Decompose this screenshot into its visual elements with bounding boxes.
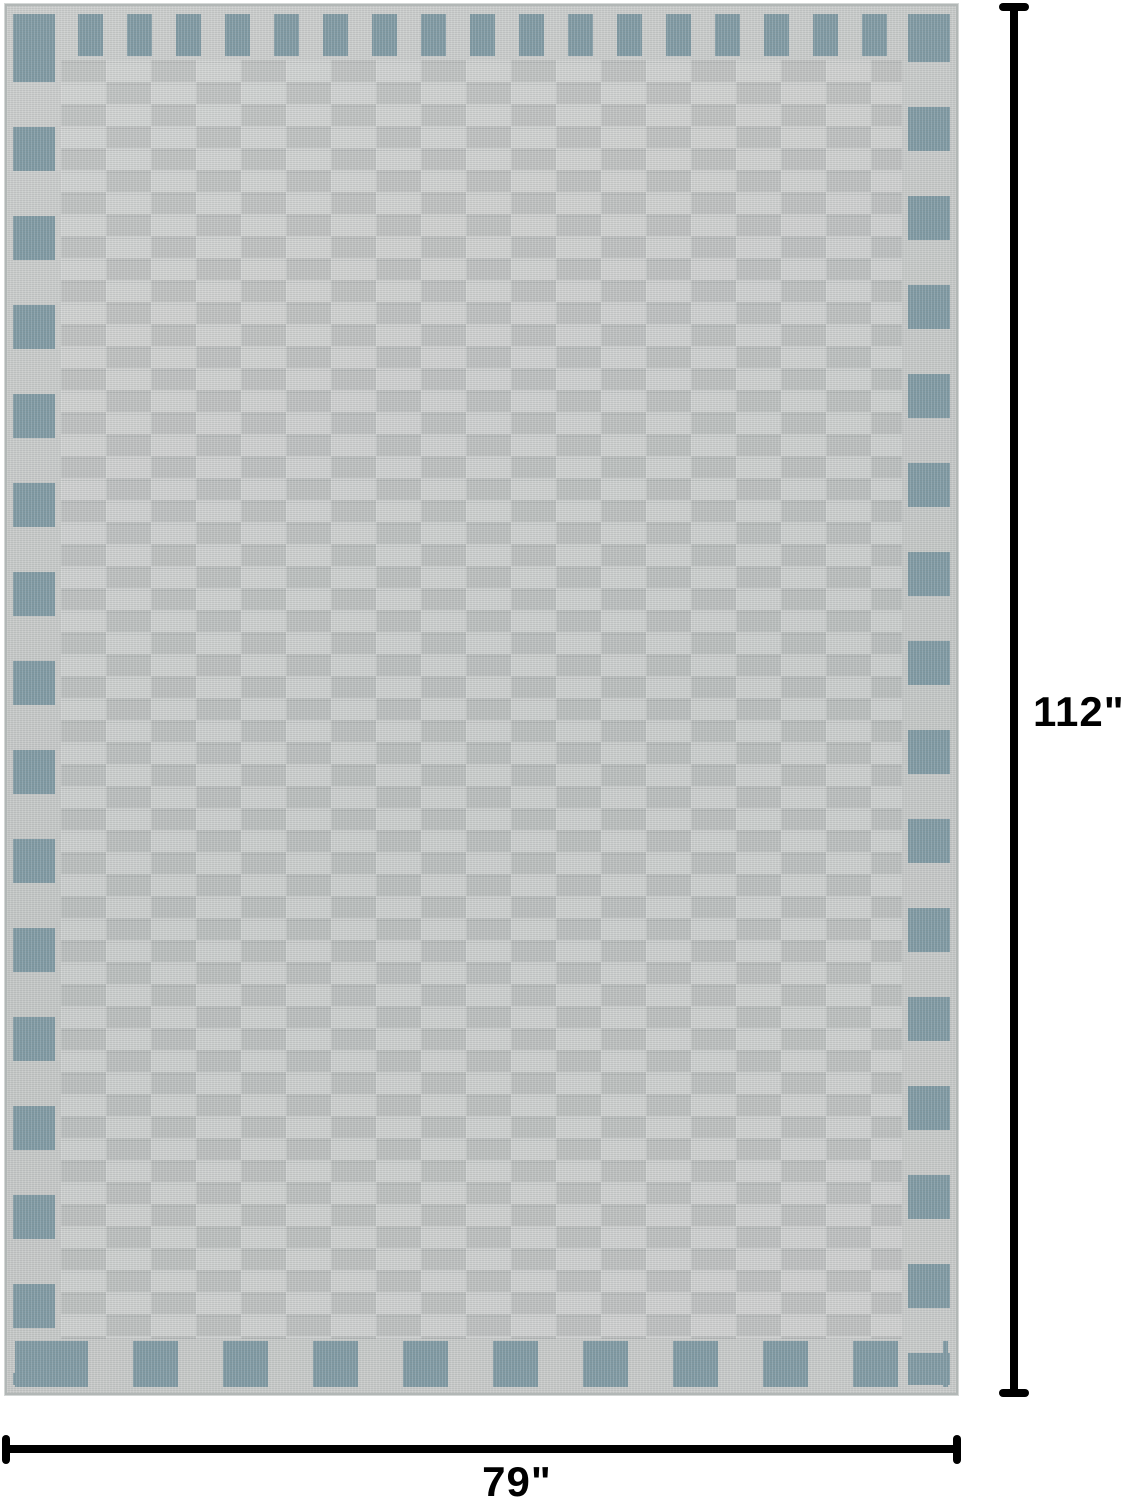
dimension-end-cap-top: [999, 3, 1029, 11]
height-dimension-line: [1010, 3, 1018, 1397]
height-dimension-label: 112": [1033, 691, 1123, 733]
rug-checker-border-bottom: [15, 1341, 948, 1387]
dimension-end-cap-left: [2, 1435, 10, 1464]
product-dimension-diagram: 112" 79": [0, 0, 1123, 1500]
dimension-end-cap-bottom: [999, 1389, 1029, 1397]
rug-checker-border-right: [908, 14, 950, 1385]
rug-image: [5, 4, 958, 1395]
rug-checker-border-top: [15, 14, 948, 56]
rug-checker-border-left: [13, 14, 55, 1385]
dimension-end-cap-right: [953, 1435, 961, 1464]
width-dimension-line: [4, 1445, 960, 1453]
rug-field-brick-pattern: [61, 60, 902, 1339]
width-dimension-label: 79": [455, 1461, 579, 1500]
